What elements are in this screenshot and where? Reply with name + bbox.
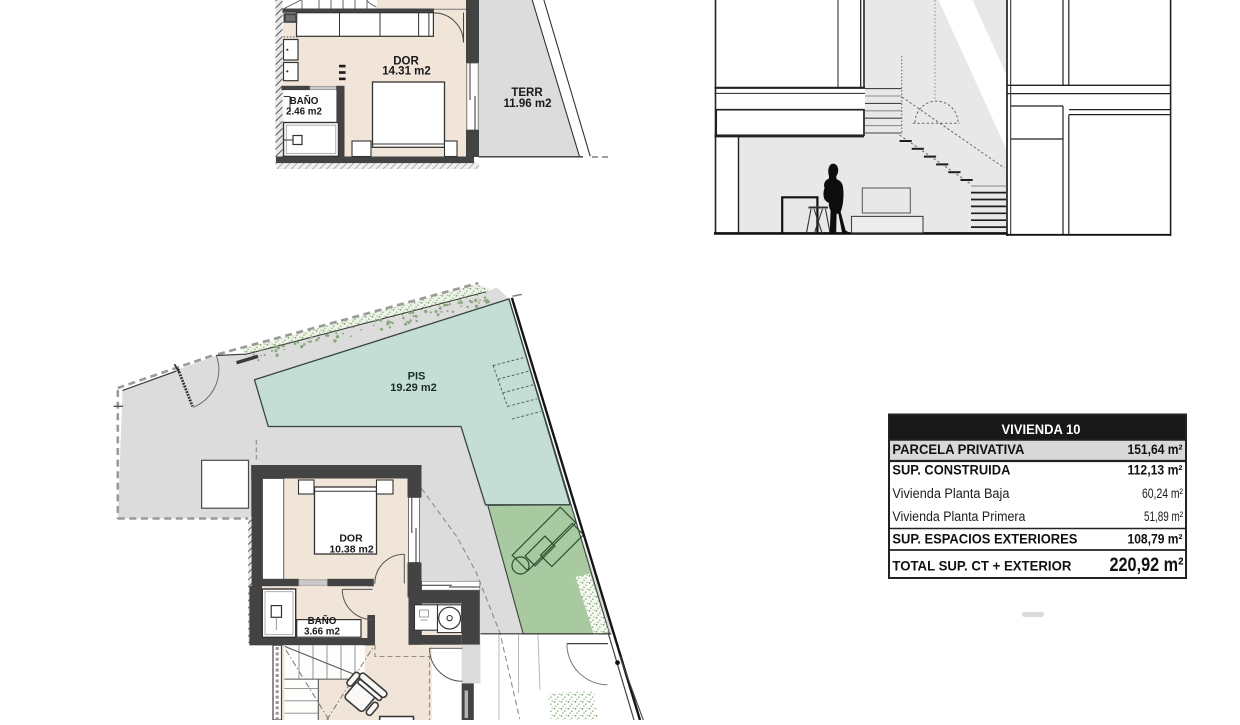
svg-text:Vivienda Planta Primera: Vivienda Planta Primera xyxy=(892,509,1025,524)
svg-text:PIS: PIS xyxy=(408,371,426,383)
svg-text:VIVIENDA 10: VIVIENDA 10 xyxy=(1002,422,1081,437)
svg-text:3.66 m2: 3.66 m2 xyxy=(304,627,341,638)
svg-text:220,92 m²: 220,92 m² xyxy=(1110,555,1184,576)
svg-text:10.38 m2: 10.38 m2 xyxy=(329,544,374,556)
svg-text:TOTAL SUP. CT + EXTERIOR: TOTAL SUP. CT + EXTERIOR xyxy=(892,559,1071,574)
svg-text:14.31 m2: 14.31 m2 xyxy=(382,66,431,78)
svg-text:Vivienda Planta Baja: Vivienda Planta Baja xyxy=(892,486,1009,501)
svg-text:BAÑO: BAÑO xyxy=(290,96,319,107)
svg-text:108,79 m²: 108,79 m² xyxy=(1128,532,1183,547)
svg-text:151,64 m²: 151,64 m² xyxy=(1128,442,1183,457)
svg-text:11.96 m2: 11.96 m2 xyxy=(504,98,552,110)
svg-text:SUP. CONSTRUIDA: SUP. CONSTRUIDA xyxy=(892,463,1010,478)
svg-text:112,13 m²: 112,13 m² xyxy=(1128,463,1183,478)
svg-text:PARCELA PRIVATIVA: PARCELA PRIVATIVA xyxy=(892,442,1024,457)
svg-text:19.29 m2: 19.29 m2 xyxy=(390,382,436,394)
svg-text:SUP. ESPACIOS EXTERIORES: SUP. ESPACIOS EXTERIORES xyxy=(892,532,1077,547)
svg-text:BAÑO: BAÑO xyxy=(308,616,337,627)
svg-text:2.46 m2: 2.46 m2 xyxy=(286,107,323,118)
svg-text:60,24 m²: 60,24 m² xyxy=(1142,486,1183,501)
svg-text:51,89 m²: 51,89 m² xyxy=(1144,509,1183,524)
